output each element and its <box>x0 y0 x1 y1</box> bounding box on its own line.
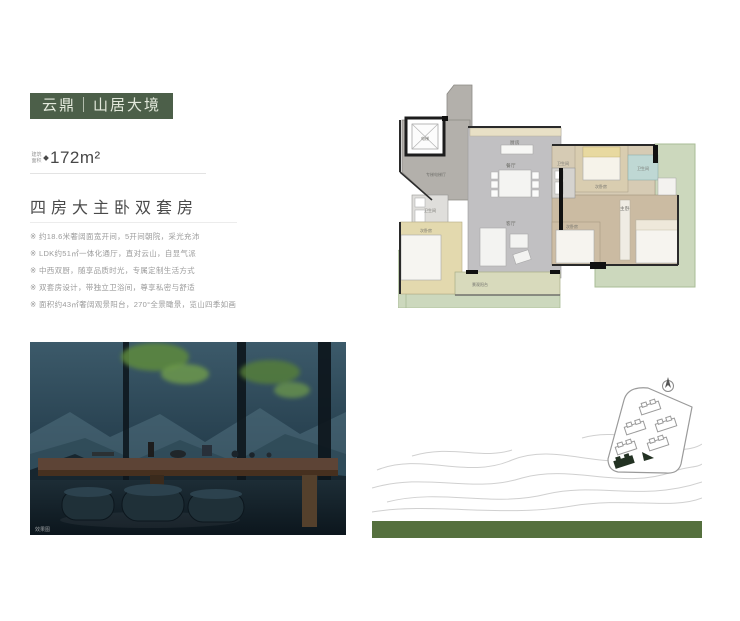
divider <box>30 173 206 174</box>
photo-watermark: 效果图 <box>35 526 50 533</box>
floorplan-panel: 电梯 专梯电梯厅 厨房 餐厅 客厅 卫生间 次卧房 卫生间 次卧房 卫生间 主卧… <box>398 82 696 308</box>
siteplan-panel <box>372 360 702 540</box>
room-label-elevator-hall: 专梯电梯厅 <box>426 171 446 177</box>
layout-headline: 四房大主卧双套房 <box>30 194 198 218</box>
room-label-master: 主卧 <box>620 205 630 212</box>
ad-page: 云鼎｜山居大境 建筑面积 172m² 四房大主卧双套房 ※ 约18.6米奢阔面宽… <box>0 0 740 621</box>
feature-item: ※ 中西双厨，随享品质时光，专属定制生活方式 <box>30 262 280 279</box>
divider <box>30 222 237 223</box>
feature-item: ※ 约18.6米奢阔面宽开间，5开间朝院，采光充沛 <box>30 228 280 245</box>
room-label-bedroom-1: 次卧房 <box>420 227 432 233</box>
north-arrow-icon <box>663 377 674 392</box>
siteplan-drawing <box>372 360 702 540</box>
room-label-elevator: 电梯 <box>421 135 429 141</box>
room-label-bath-3: 卫生间 <box>637 165 649 171</box>
room-label-dining: 餐厅 <box>506 162 516 169</box>
feature-item: ※ 双套房设计，带独立卫浴间，尊享私密与舒适 <box>30 279 280 296</box>
room-label-bath-1: 卫生间 <box>424 207 436 213</box>
area-row: 建筑面积 172m² <box>30 148 101 168</box>
feature-item: ※ LDK约51㎡一体化通厅，直对云山，自显气派 <box>30 245 280 262</box>
lifestyle-photo: 效果图 <box>30 342 346 535</box>
tea-room-rendering: 效果图 <box>30 342 346 535</box>
floorplan-drawing: 电梯 专梯电梯厅 厨房 餐厅 客厅 卫生间 次卧房 卫生间 次卧房 卫生间 主卧… <box>398 82 696 308</box>
area-label-icon: 建筑面积 <box>30 152 43 164</box>
feature-list: ※ 约18.6米奢阔面宽开间，5开间朝院，采光充沛 ※ LDK约51㎡一体化通厅… <box>30 228 280 313</box>
room-label-bedroom-3: 次卧房 <box>566 223 578 229</box>
room-label-kitchen: 厨房 <box>510 139 520 146</box>
room-label-bedroom-2: 次卧房 <box>595 183 607 189</box>
room-label-living: 客厅 <box>506 220 516 227</box>
project-name-badge: 云鼎｜山居大境 <box>30 93 173 119</box>
green-footer-bar <box>372 521 702 538</box>
room-label-bath-2: 卫生间 <box>557 160 569 166</box>
diamond-bullet-icon <box>43 155 49 161</box>
area-value: 172m² <box>50 148 101 168</box>
feature-item: ※ 面积约43㎡奢阔观景阳台，270°全景瞰景，览山四季如画 <box>30 296 280 313</box>
room-label-balcony: 景观阳台 <box>472 281 488 287</box>
